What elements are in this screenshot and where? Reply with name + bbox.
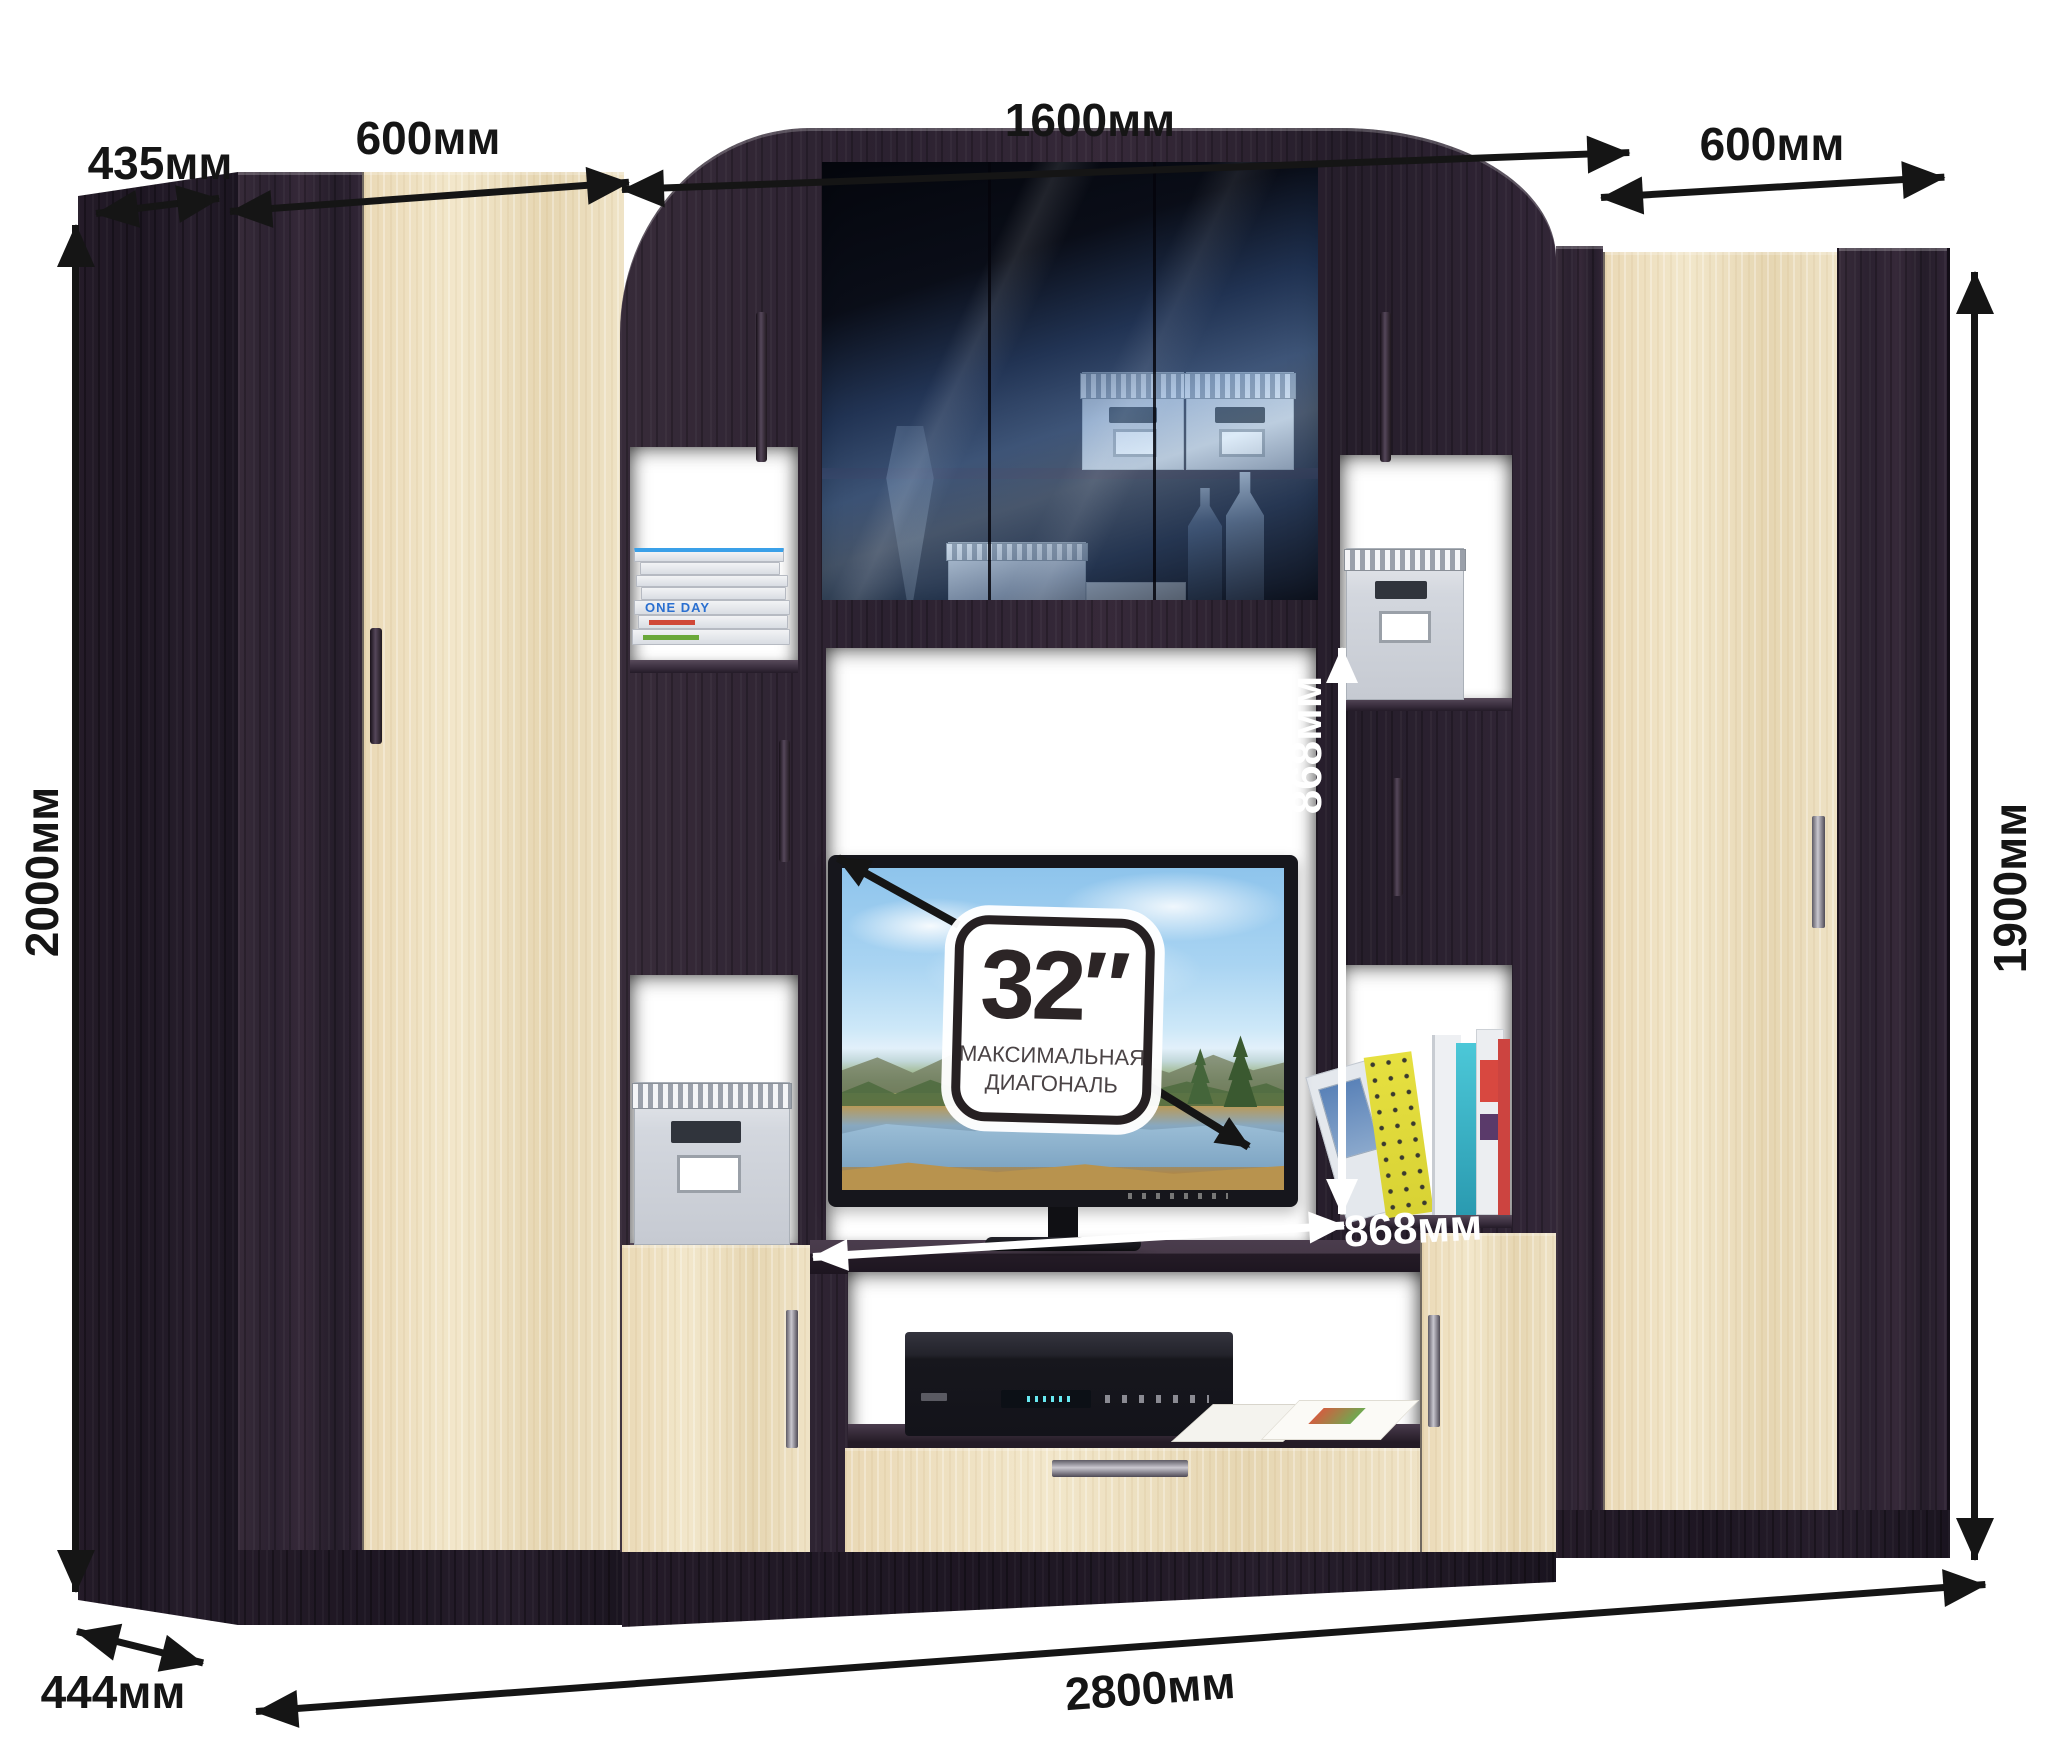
dvd-logo — [921, 1393, 947, 1401]
right-wardrobe — [1556, 244, 1950, 1558]
tv-diagonal-badge: 32″ МАКСИМАЛЬНАЯ ДИАГОНАЛЬ — [950, 914, 1155, 1125]
book — [632, 629, 790, 645]
dvd-player — [905, 1332, 1233, 1436]
dim-label-depth-top: 435мм — [88, 136, 233, 190]
door-handle — [1428, 1315, 1440, 1427]
book — [641, 587, 786, 600]
right-wardrobe-dark-door — [1837, 248, 1949, 1510]
furniture-dimension-diagram: ONE DAY — [0, 0, 2048, 1757]
door-handle — [756, 312, 767, 462]
left-wardrobe-dark-door — [238, 172, 362, 1550]
dvd-display — [1001, 1390, 1091, 1408]
left-wardrobe-cream-door — [362, 172, 624, 1550]
book-spine-title: ONE DAY — [645, 600, 710, 615]
glass-doors — [822, 162, 1318, 600]
right-wardrobe-side-edge — [1947, 248, 1950, 1510]
dim-label-left-height: 2000мм — [15, 787, 69, 957]
door-handle — [1392, 778, 1403, 896]
book-stack: ONE DAY — [632, 548, 796, 660]
dim-label-right-width: 600мм — [1700, 117, 1845, 171]
center-plinth — [622, 1552, 1556, 1627]
dim-arrow-depth-bottom — [76, 1628, 204, 1666]
book — [636, 575, 788, 587]
book — [638, 615, 788, 629]
bottom-cabinet-right-door — [1420, 1233, 1558, 1552]
dim-arrow-left-height — [72, 225, 79, 1592]
door-handle — [779, 740, 790, 862]
dim-label-center-width: 1600мм — [1005, 93, 1175, 147]
right-wardrobe-cream-door — [1603, 252, 1839, 1510]
right-wardrobe-stile — [1556, 246, 1603, 1510]
dim-label-niche-width: 868мм — [1343, 1200, 1484, 1257]
dim-label-left-width: 600мм — [356, 111, 501, 165]
dim-label-right-height: 1900мм — [1983, 803, 2037, 973]
shelf-lip — [630, 660, 798, 673]
tv-stand-neck — [1048, 1207, 1078, 1239]
door-handle — [1812, 816, 1825, 928]
door-handle — [786, 1310, 798, 1448]
drawer-handle — [1052, 1460, 1188, 1477]
open-magazine — [1192, 1396, 1408, 1444]
dim-arrow-niche-height — [1338, 648, 1346, 1214]
dim-label-total-width: 2800мм — [1063, 1655, 1237, 1721]
book — [634, 548, 784, 562]
left-wardrobe — [238, 172, 622, 1625]
magazine-stack — [1346, 1002, 1510, 1215]
door-handle — [370, 628, 382, 744]
glass-door-divider — [1153, 162, 1156, 600]
storage-box — [634, 1082, 790, 1245]
badge-caption-line2: ДИАГОНАЛЬ — [958, 1068, 1145, 1101]
dim-label-depth-bottom: 444мм — [41, 1665, 186, 1719]
storage-box — [1346, 548, 1464, 700]
left-wardrobe-side-panel — [78, 172, 238, 1650]
book — [1498, 1039, 1510, 1215]
dim-arrow-right-width — [1601, 174, 1945, 201]
book — [640, 562, 780, 575]
book: ONE DAY — [634, 600, 790, 615]
dim-arrow-right-height — [1971, 272, 1978, 1560]
dim-label-niche-height: 868мм — [1282, 676, 1332, 815]
bottom-cabinet-left-door — [622, 1245, 810, 1552]
tv-controls — [1128, 1193, 1228, 1199]
book — [1456, 1043, 1478, 1215]
door-handle — [1380, 312, 1391, 462]
right-wardrobe-plinth — [1556, 1510, 1950, 1558]
badge-diagonal-value: 32″ — [979, 939, 1128, 1031]
left-wardrobe-plinth — [238, 1550, 622, 1625]
glass-door-divider — [988, 162, 991, 600]
